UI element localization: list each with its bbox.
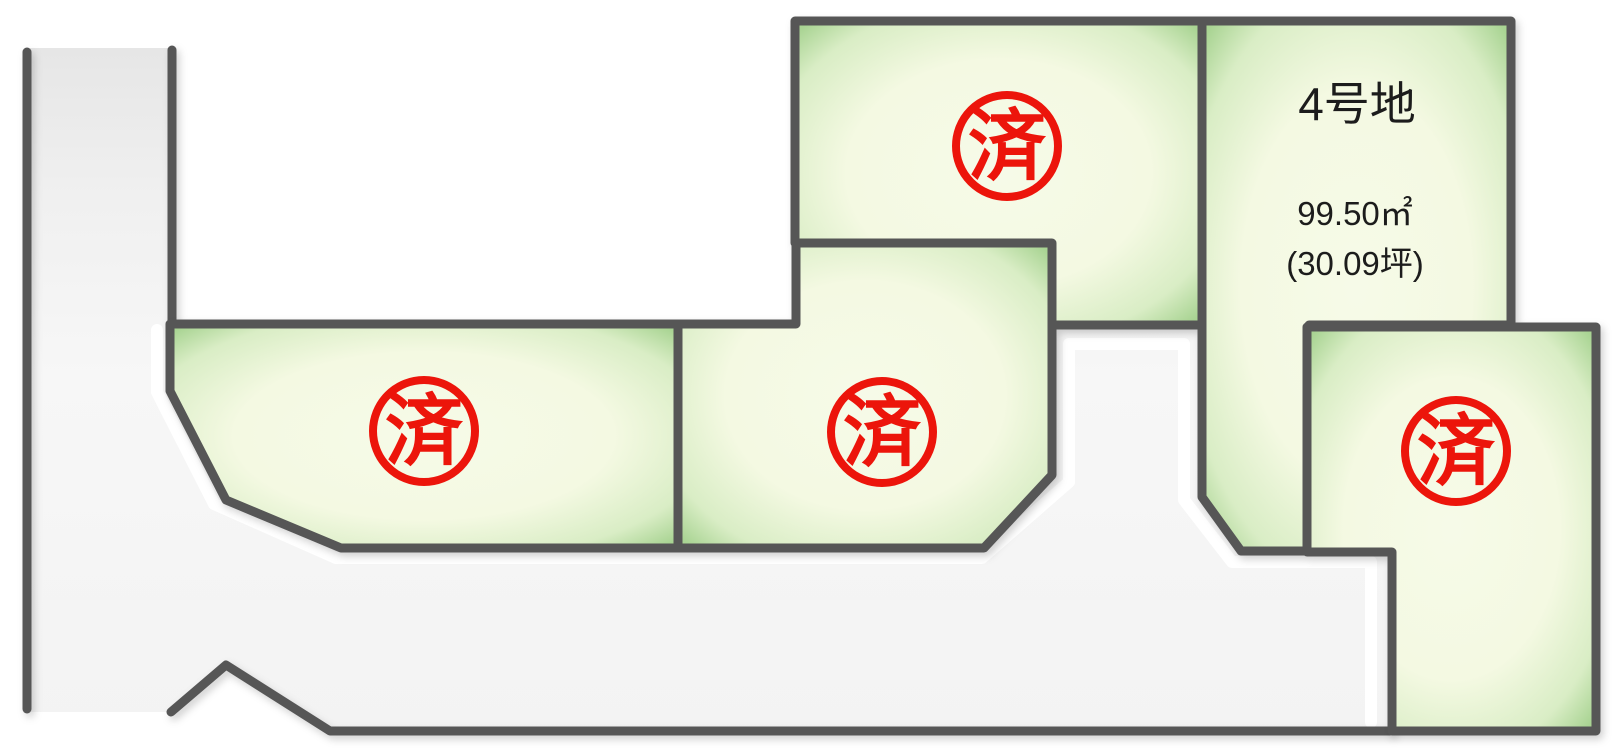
lot-4-area-tsubo: (30.09坪) (1286, 245, 1424, 282)
stamp-text: 済 (843, 388, 922, 476)
sold-stamp-bottom-right: 済 (1405, 400, 1507, 502)
lot-4-name: 4号地 (1298, 78, 1416, 130)
lot-map-canvas: 済 済 済 済 4号地 99.50㎡ (30.09坪) (0, 0, 1621, 753)
sold-stamp-center: 済 (831, 381, 933, 483)
sold-stamp-top-middle: 済 (956, 95, 1058, 197)
lot-map-svg: 済 済 済 済 4号地 99.50㎡ (30.09坪) (0, 0, 1621, 753)
stamp-text: 済 (1417, 407, 1496, 495)
stamp-text: 済 (968, 102, 1047, 190)
sold-stamp-left: 済 (373, 380, 475, 482)
lot-4-area-sqm: 99.50㎡ (1297, 195, 1413, 232)
stamp-text: 済 (385, 387, 464, 475)
